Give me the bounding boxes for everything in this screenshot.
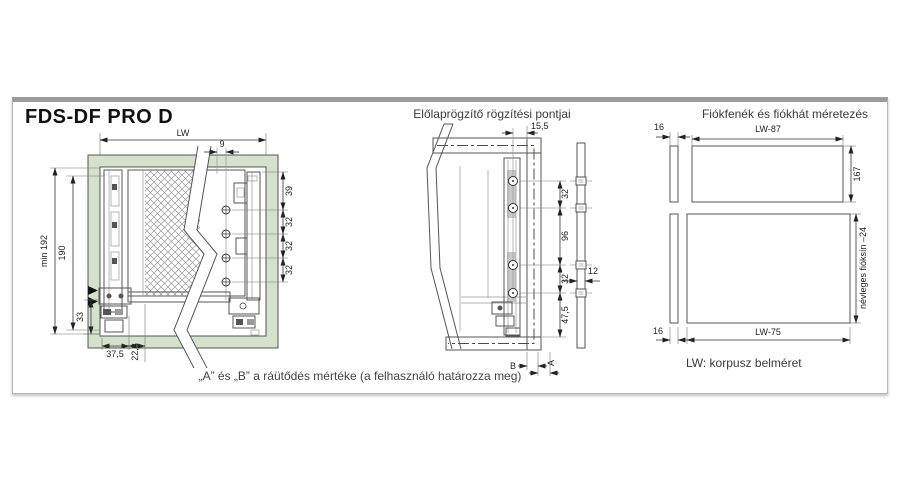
dim-32c: 32 — [284, 265, 294, 275]
front-fixing-rail — [492, 128, 520, 336]
screw-point-icon — [222, 254, 231, 263]
dim-32-bottom: 32 — [560, 274, 570, 284]
lw-note: LW: korpusz belméret — [686, 356, 802, 370]
page: FDS-DF PRO D — [0, 0, 900, 500]
left-diagram: LW 9 min 192 190 33 — [39, 128, 521, 383]
fixing-point-icon — [509, 261, 518, 270]
dim-96: 96 — [560, 231, 570, 241]
dim-39: 39 — [284, 186, 294, 196]
page-title: FDS-DF PRO D — [25, 106, 173, 128]
dim-37-5: 37,5 — [106, 349, 124, 359]
dim-190: 190 — [57, 245, 67, 260]
dim-32b: 32 — [284, 241, 294, 251]
fixing-point-icon — [509, 177, 518, 186]
screw-point-icon — [222, 206, 231, 215]
middle-diagram: Előlaprögzítő rögzítési pontjai — [413, 107, 600, 376]
fixing-point-icon — [509, 204, 518, 213]
dim-12: 12 — [588, 266, 598, 276]
dim-16-bottom: 16 — [653, 326, 663, 336]
left-slide-rail — [104, 170, 122, 312]
dim-9: 9 — [219, 139, 224, 149]
dim-lw75: LW-75 — [755, 327, 781, 337]
dim-b: B — [510, 361, 516, 371]
drawer-bottom-panel — [670, 214, 850, 323]
right-diagram: Fiókfenék és fiókhát méretezés 16 — [653, 107, 868, 370]
carcass-bars — [433, 138, 541, 350]
screw-point-icon — [222, 230, 231, 239]
middle-title: Előlaprögzítő rögzítési pontjai — [413, 107, 570, 121]
dim-lw: LW — [177, 128, 190, 138]
right-dimensions: 16 LW-87 167 névleges fióksín –24 — [653, 122, 868, 344]
screw-point-icon — [222, 278, 231, 287]
left-caption: „A” és „B” a ráütődés mértéke (a felhasz… — [199, 369, 522, 383]
dim-15-5: 15,5 — [531, 121, 549, 131]
dim-nevleges-fioksin: névleges fióksín –24 — [858, 227, 868, 309]
dim-33: 33 — [75, 312, 85, 322]
drawer-back-top — [670, 146, 843, 202]
right-title: Fiókfenék és fiókhát méretezés — [702, 107, 868, 121]
dim-min192: min 192 — [39, 235, 49, 267]
dim-a: A — [546, 360, 556, 366]
right-fixing-rail — [217, 148, 260, 300]
dim-lw87: LW-87 — [755, 124, 781, 134]
dim-22-8: 22,8 — [130, 343, 140, 361]
technical-drawing: FDS-DF PRO D — [0, 0, 900, 500]
dim-167: 167 — [852, 166, 862, 181]
dim-32a: 32 — [284, 217, 294, 227]
fixing-point-icon — [509, 289, 518, 298]
back-fixing-strip — [570, 143, 592, 348]
dim-16-top: 16 — [654, 122, 664, 132]
dim-47-5: 47,5 — [560, 306, 570, 324]
dim-32-top: 32 — [560, 189, 570, 199]
